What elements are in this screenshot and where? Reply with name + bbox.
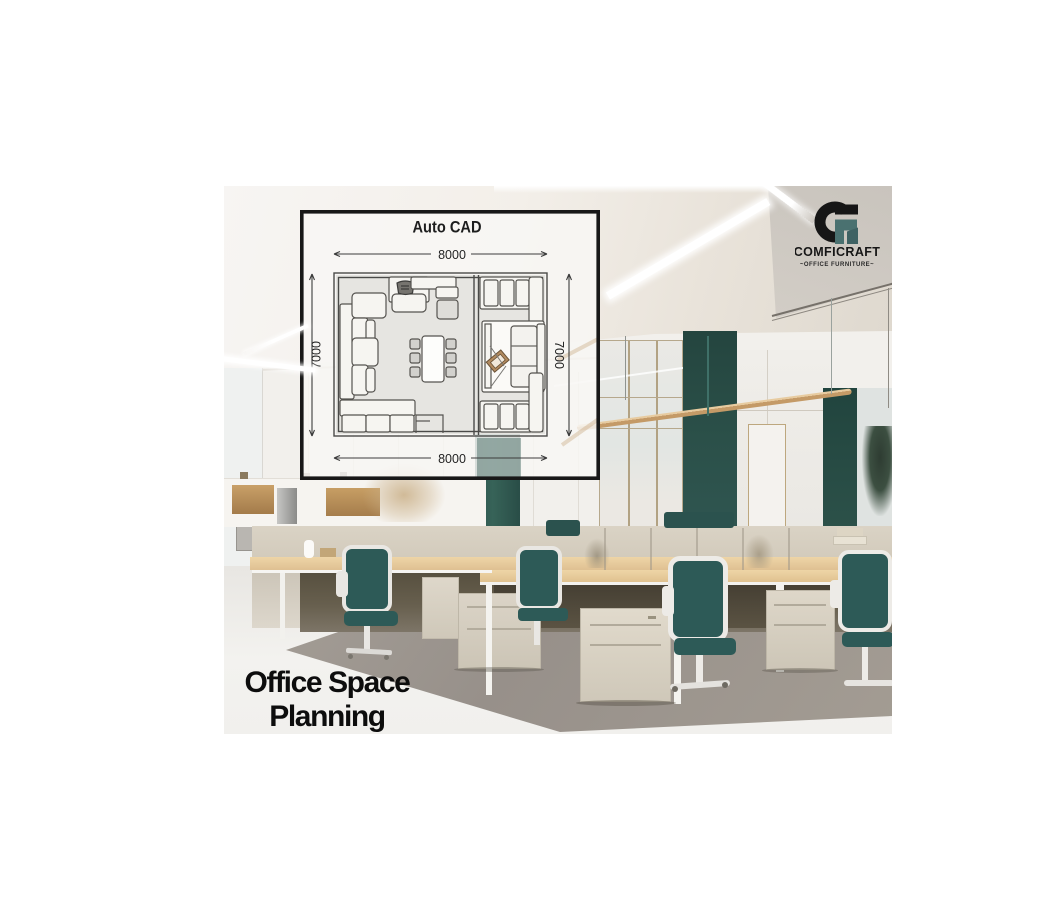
svg-text:~OFFICE FURNITURE~: ~OFFICE FURNITURE~ <box>800 262 874 268</box>
svg-text:7000: 7000 <box>310 341 324 369</box>
svg-text:COMFICRAFT: COMFICRAFT <box>795 245 880 259</box>
svg-text:7000: 7000 <box>552 341 566 369</box>
svg-text:8000: 8000 <box>438 248 466 262</box>
svg-text:8000: 8000 <box>438 452 466 466</box>
svg-text:Auto CAD: Auto CAD <box>413 218 482 237</box>
